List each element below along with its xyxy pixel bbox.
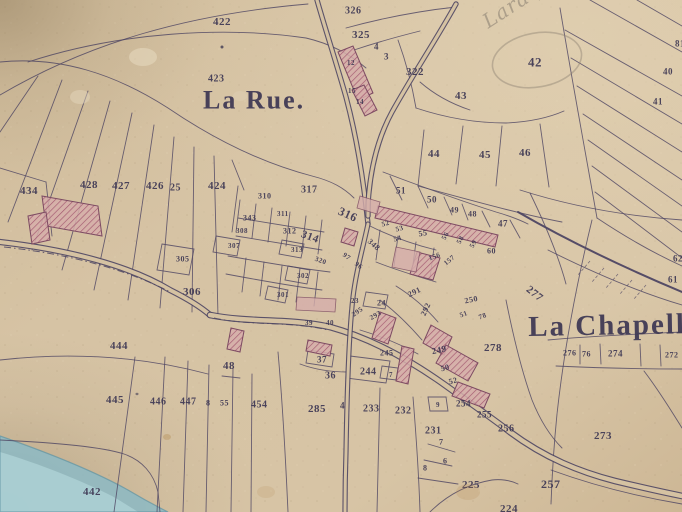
parcel-number-label: 256 xyxy=(498,423,515,434)
parcel-number-label: 307 xyxy=(228,242,240,250)
parcel-number-label: 326 xyxy=(345,5,362,16)
parcel-number-label: 308 xyxy=(236,227,248,235)
building-hatched xyxy=(28,212,50,244)
parcel-number-label: 302 xyxy=(297,272,309,280)
parcel-number-label: 25 xyxy=(170,182,181,193)
parcel-number-label: 40 xyxy=(326,319,334,327)
parcel-number-label: 422 xyxy=(213,16,231,28)
parcel-number-label: 45 xyxy=(479,149,491,161)
parcel-number-label: 42 xyxy=(528,55,542,70)
parcel-number-label: 40 xyxy=(663,66,673,76)
parcel-number-label: 23 xyxy=(351,297,359,305)
parcel-number-label: 274 xyxy=(608,348,623,358)
paper-shadow-top-left xyxy=(0,0,220,180)
parcel-number-label: 51 xyxy=(396,185,406,195)
parcel-number-label: 7 xyxy=(439,438,444,447)
parcel-number-label: 442 xyxy=(83,486,101,498)
paper-stain xyxy=(221,46,224,49)
parcel-number-label: 424 xyxy=(208,180,226,192)
parcel-number-label: 255 xyxy=(477,409,492,419)
parcel-number-label: 46 xyxy=(519,147,531,159)
parcel-number-label: 301 xyxy=(277,291,289,299)
paper-stain xyxy=(233,91,247,101)
parcel-number-label: 39 xyxy=(305,319,313,327)
parcel-number-label: 12 xyxy=(347,59,355,67)
parcel-number-label: 24 xyxy=(377,299,386,308)
parcel-number-label: 313 xyxy=(291,246,303,254)
parcel-number-label: 310 xyxy=(258,192,272,201)
parcel-number-label: 6 xyxy=(443,457,448,466)
parcel-number-label: 50 xyxy=(427,194,437,204)
parcel-number-label: 285 xyxy=(308,403,326,415)
parcel-number-label: 254 xyxy=(456,398,471,408)
building-tinted xyxy=(392,247,420,272)
parcel-number-label: 9 xyxy=(436,401,440,409)
parcel-number-label: 60 xyxy=(487,247,496,256)
parcel-number-label: 47 xyxy=(498,218,508,228)
parcel-number-label: 232 xyxy=(395,405,412,416)
parcel-number-label: 305 xyxy=(176,255,190,264)
paper-stain xyxy=(129,48,157,66)
parcel-number-label: 312 xyxy=(283,227,297,236)
parcel-number-label: 44 xyxy=(428,148,440,160)
parcel-number-label: 317 xyxy=(301,184,318,195)
place-name-label: La Rue. xyxy=(203,85,305,114)
parcel-number-label: 4 xyxy=(374,41,379,51)
parcel-number-label: 8 xyxy=(206,399,211,408)
parcel-number-label: 454 xyxy=(251,399,268,410)
parcel-number-label: 81 xyxy=(675,38,682,48)
paper-stain xyxy=(257,486,275,498)
parcel-number-label: 62 xyxy=(673,253,682,263)
paper-stain xyxy=(163,434,171,440)
parcel-number-label: 233 xyxy=(363,403,380,414)
parcel-number-label: 37 xyxy=(317,354,327,364)
parcel-number-label: 49 xyxy=(450,206,459,215)
parcel-number-label: 273 xyxy=(594,430,612,442)
parcel-number-label: 48 xyxy=(223,360,235,372)
parcel-number-label: 257 xyxy=(541,477,561,491)
parcel-number-label: 245 xyxy=(380,349,394,358)
parcel-number-label: 343 xyxy=(243,214,257,223)
parcel-number-label: 322 xyxy=(406,66,424,78)
parcel-number-label: 55 xyxy=(418,228,428,238)
parcel-number-label: 446 xyxy=(150,396,167,407)
cadastral-map: Laraque 42242343442842742625424326325433… xyxy=(0,0,682,512)
parcel-number-label: 61 xyxy=(668,274,678,284)
parcel-number-label: 325 xyxy=(352,29,370,41)
paper-stain xyxy=(70,90,90,104)
parcel-number-label: 428 xyxy=(80,179,98,191)
parcel-number-label: 43 xyxy=(455,90,467,102)
parcel-number-label: 444 xyxy=(110,340,128,352)
parcel-number-label: 7 xyxy=(389,371,393,379)
parcel-number-label: 445 xyxy=(106,394,124,406)
parcel-number-label: 311 xyxy=(277,210,289,218)
parcel-number-label: 426 xyxy=(146,180,164,192)
paper-stain xyxy=(456,484,480,500)
parcel-number-label: 427 xyxy=(112,180,130,192)
parcel-number-label: 244 xyxy=(360,366,377,377)
parcel-number-label: 14 xyxy=(356,98,364,106)
parcel-number-label: 76 xyxy=(582,350,591,359)
parcel-number-label: 48 xyxy=(468,210,477,219)
parcel-number-label: 272 xyxy=(665,351,679,360)
parcel-number-label: 4 xyxy=(340,400,345,410)
parcel-number-label: 231 xyxy=(425,425,442,436)
parcel-number-label: 15 xyxy=(348,87,356,95)
parcel-number-label: 36 xyxy=(325,370,336,381)
parcel-number-label: 434 xyxy=(20,185,38,197)
building-tinted xyxy=(296,297,336,312)
parcel-number-label: 306 xyxy=(183,286,201,298)
parcel-number-label: 41 xyxy=(653,96,663,106)
parcel-number-label: 8 xyxy=(423,464,428,473)
paper-stain xyxy=(136,393,139,395)
parcel-number-label: 55 xyxy=(220,399,229,408)
cadastral-map-screenshot: Laraque 42242343442842742625424326325433… xyxy=(0,0,682,512)
parcel-number-label: 224 xyxy=(500,503,518,512)
parcel-number-label: 276 xyxy=(563,349,577,358)
place-name-label: La Chapell xyxy=(528,308,682,343)
parcel-number-label: 423 xyxy=(208,73,225,84)
parcel-number-label: 278 xyxy=(484,342,502,354)
parcel-number-label: 3 xyxy=(384,51,389,61)
parcel-number-label: 447 xyxy=(180,396,197,407)
